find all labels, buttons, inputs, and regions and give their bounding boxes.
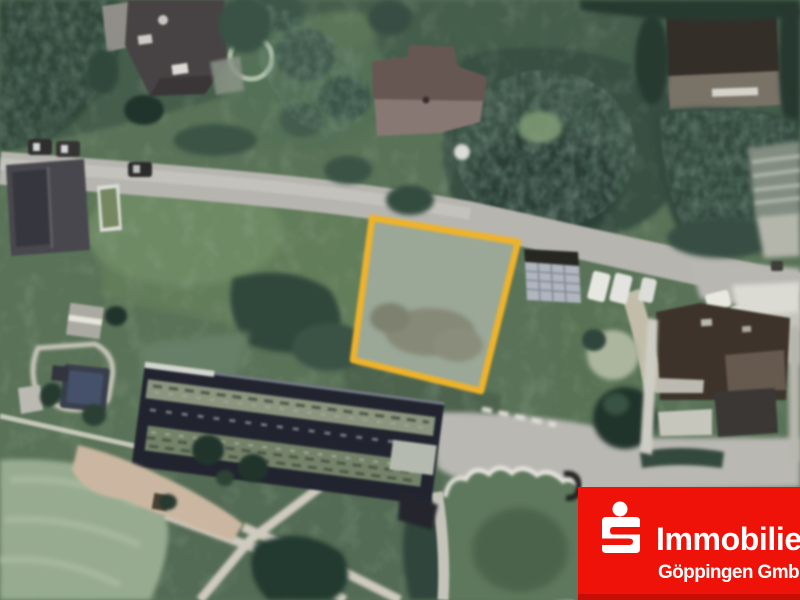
svg-text:Göppingen GmbH: Göppingen GmbH: [658, 562, 800, 583]
svg-text:Immobilien: Immobilien: [656, 521, 800, 557]
